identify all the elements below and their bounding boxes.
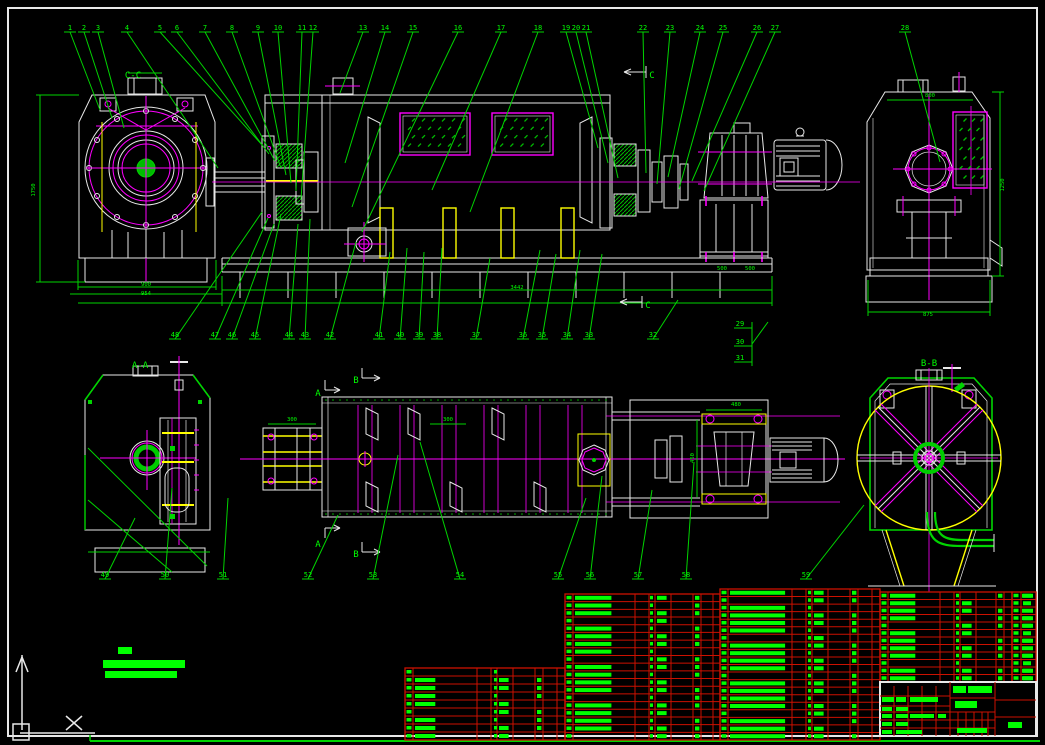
svg-text:50: 50 (161, 571, 169, 579)
svg-text:44: 44 (285, 331, 293, 339)
svg-text:7: 7 (203, 24, 207, 32)
svg-text:36: 36 (519, 331, 527, 339)
svg-text:8: 8 (230, 24, 234, 32)
dimension-lines (697, 410, 762, 497)
svg-text:48: 48 (171, 331, 179, 339)
svg-text:18: 18 (534, 24, 542, 32)
svg-text:B-B: B-B (921, 359, 937, 369)
svg-text:37: 37 (472, 331, 480, 339)
svg-text:31: 31 (736, 354, 744, 362)
bearing-plan-left (263, 424, 322, 490)
svg-text:900: 900 (141, 282, 151, 288)
svg-text:25: 25 (719, 24, 727, 32)
svg-text:56: 56 (586, 571, 594, 579)
svg-text:875: 875 (923, 312, 933, 318)
svg-text:55: 55 (554, 571, 562, 579)
svg-text:38: 38 (433, 331, 441, 339)
gearbox (704, 123, 768, 198)
svg-text:46: 46 (228, 331, 236, 339)
svg-text:26: 26 (753, 24, 761, 32)
svg-text:1: 1 (68, 24, 72, 32)
svg-text:52: 52 (304, 571, 312, 579)
svg-text:B: B (353, 376, 358, 386)
svg-text:59: 59 (802, 571, 810, 579)
svg-text:19: 19 (562, 24, 570, 32)
svg-text:1750: 1750 (31, 183, 37, 196)
view-right-end (866, 72, 1004, 316)
svg-text:54: 54 (456, 571, 464, 579)
section-arrow-c-bottom (620, 296, 642, 308)
svg-text:800: 800 (925, 93, 935, 99)
svg-text:C: C (649, 71, 654, 81)
svg-text:53: 53 (369, 571, 377, 579)
cad-drawing-canvas[interactable]: 1234567891011121314151617181920212223242… (0, 0, 1045, 745)
svg-text:28: 28 (901, 24, 909, 32)
svg-text:23: 23 (666, 24, 674, 32)
motor-plan (770, 438, 838, 482)
part-callout-numbers: 1234567891011121314151617181920212223242… (64, 24, 911, 579)
svg-text:34: 34 (563, 331, 571, 339)
svg-text:9: 9 (256, 24, 260, 32)
tech-note (103, 647, 185, 678)
svg-text:6: 6 (175, 24, 179, 32)
svg-text:15: 15 (409, 24, 417, 32)
svg-text:C: C (645, 301, 650, 311)
svg-text:3: 3 (96, 24, 100, 32)
svg-text:43: 43 (301, 331, 309, 339)
svg-text:A: A (315, 540, 321, 550)
svg-text:16: 16 (454, 24, 462, 32)
legs (380, 208, 574, 258)
svg-text:41: 41 (375, 331, 383, 339)
svg-text:B: B (353, 550, 358, 560)
svg-text:500: 500 (745, 266, 755, 272)
svg-text:33: 33 (585, 331, 593, 339)
view-plan (240, 368, 845, 555)
svg-text:A-A: A-A (132, 361, 149, 371)
svg-text:45: 45 (251, 331, 259, 339)
svg-text:480: 480 (731, 402, 741, 408)
svg-text:40: 40 (396, 331, 404, 339)
svg-text:12: 12 (309, 24, 317, 32)
motor (774, 128, 842, 190)
svg-text:24: 24 (696, 24, 704, 32)
view-section-bb (857, 364, 1001, 592)
view-main-front (78, 66, 860, 308)
svg-text:20: 20 (572, 24, 580, 32)
bearing-right (600, 138, 650, 228)
base-frame (222, 258, 772, 298)
svg-text:A: A (315, 389, 321, 399)
svg-text:35: 35 (538, 331, 546, 339)
section-arrow-c-top (624, 66, 646, 78)
svg-text:14: 14 (381, 24, 389, 32)
svg-text:29: 29 (736, 320, 744, 328)
leader-lines (70, 32, 940, 579)
svg-text:39: 39 (415, 331, 423, 339)
svg-text:47: 47 (211, 331, 219, 339)
svg-text:27: 27 (771, 24, 779, 32)
svg-text:30: 30 (736, 338, 744, 346)
dimension-lines (868, 92, 1004, 316)
svg-text:11: 11 (298, 24, 306, 32)
svg-text:58: 58 (682, 571, 690, 579)
svg-text:5: 5 (158, 24, 162, 32)
bom-parts-table (405, 589, 1036, 740)
svg-text:C-C: C-C (125, 71, 141, 81)
svg-text:500: 500 (717, 266, 727, 272)
svg-text:22: 22 (639, 24, 647, 32)
svg-text:57: 57 (634, 571, 642, 579)
svg-text:2: 2 (82, 24, 86, 32)
cursor-crosshair[interactable] (66, 716, 82, 730)
dimension-lines (78, 276, 772, 306)
svg-text:10: 10 (274, 24, 282, 32)
ucs-icon (13, 655, 95, 740)
svg-text:450: 450 (690, 453, 696, 463)
svg-text:21: 21 (582, 24, 590, 32)
svg-text:13: 13 (359, 24, 367, 32)
svg-text:954: 954 (141, 291, 152, 297)
svg-text:49: 49 (101, 571, 109, 579)
svg-text:4: 4 (125, 24, 129, 32)
view-section-aa (85, 356, 210, 572)
svg-text:51: 51 (219, 571, 227, 579)
motor-pedestal (700, 200, 768, 258)
view-section-cc (36, 73, 222, 294)
svg-text:3442: 3442 (510, 285, 523, 291)
svg-text:32: 32 (649, 331, 657, 339)
svg-text:42: 42 (326, 331, 334, 339)
svg-text:300: 300 (287, 417, 297, 423)
svg-text:1250: 1250 (1000, 178, 1006, 191)
dimension-lines (36, 95, 222, 294)
svg-text:17: 17 (497, 24, 505, 32)
section-view-labels: C-CCCA-AB-BABAB (125, 71, 937, 560)
svg-text:300: 300 (443, 417, 453, 423)
